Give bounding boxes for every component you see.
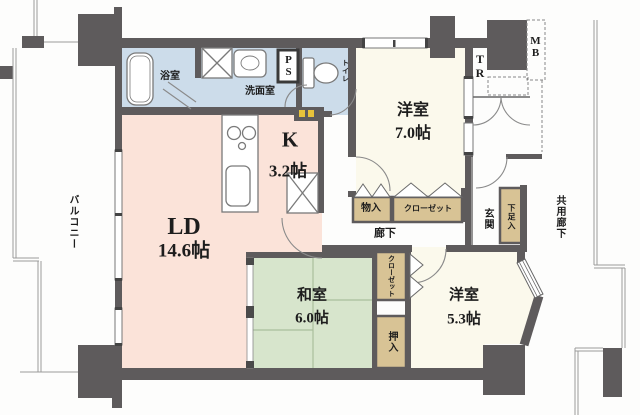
trunk-door-left — [473, 97, 501, 125]
japanese-room-size: 6.0帖 — [295, 312, 329, 327]
stove-burner-2 — [243, 127, 256, 140]
balcony-label: バルコニー — [67, 195, 77, 250]
kitchen-name: K — [282, 130, 298, 151]
heater-light-1 — [299, 110, 305, 117]
wall-hall-south-w — [322, 245, 412, 252]
kitchen-size: 3.2帖 — [269, 163, 307, 180]
floor-plan-drawing — [0, 0, 640, 415]
kitchen-sink — [226, 166, 250, 206]
pillar-top-mid — [430, 16, 455, 58]
wall-entry — [506, 154, 542, 159]
window-balcony-2 — [115, 308, 122, 345]
ld-room-size: 14.6帖 — [158, 242, 210, 261]
window-western7-e1 — [464, 77, 473, 118]
western5-size: 5.3帖 — [447, 313, 481, 328]
washroom-label: 洗面室 — [245, 87, 275, 97]
balcony-outline — [13, 0, 78, 372]
wall-getabako-east — [520, 185, 527, 245]
mb-label: MB — [530, 35, 541, 59]
stove-burner-1 — [228, 127, 241, 140]
common-corridor-label: 共用廊下 — [554, 195, 564, 239]
corridor-block — [603, 348, 622, 397]
getabako-label: 下足入 — [507, 204, 515, 231]
pillar-top-right — [487, 20, 527, 70]
toilet-bowl — [314, 63, 338, 83]
pillar-bottom-right — [483, 345, 525, 395]
trunk-door-right — [501, 97, 530, 125]
monoire-label: 物入 — [361, 204, 381, 214]
western7-size: 7.0帖 — [395, 126, 431, 142]
japanese-room-name: 和室 — [297, 289, 327, 304]
wall-kitchen-corridor — [318, 107, 324, 213]
western5-name: 洋室 — [449, 289, 479, 304]
toilet-label: トイレ — [342, 59, 349, 83]
entrance-label: 玄関 — [482, 208, 492, 230]
toilet-tank — [303, 58, 314, 88]
western7-name: 洋室 — [397, 103, 429, 119]
wall-bath-wash — [195, 48, 201, 78]
heater-light-2 — [308, 110, 314, 117]
western7-floor — [356, 48, 465, 195]
wall-washitsu-east — [372, 258, 377, 368]
hallway-label: 廊下 — [374, 229, 396, 240]
trunk-room-outline — [488, 77, 528, 95]
stove-burner-3 — [239, 143, 246, 150]
tr-label: TR — [474, 52, 486, 80]
window-western7-e2 — [464, 123, 473, 155]
pillar-bottom-left — [78, 345, 122, 398]
oshiire-label: 押入 — [386, 331, 396, 353]
sliding-door — [246, 258, 254, 368]
floor-plan: LD 14.6帖 K 3.2帖 洋室 7.0帖 和室 6.0帖 洋室 5.3帖 … — [0, 0, 640, 415]
wall-bottom — [115, 368, 488, 380]
wall-bath-south — [122, 107, 322, 115]
front-door — [476, 157, 507, 188]
wall-washitsu-north — [246, 252, 375, 258]
closet-north-label: クローゼット — [404, 205, 452, 213]
bath-label: 浴室 — [160, 72, 180, 82]
balcony-divider-bar — [22, 36, 44, 48]
ps-label: PS — [283, 54, 294, 78]
water-heater — [294, 107, 320, 121]
closet-side-label: クローゼット — [388, 255, 395, 297]
wall-hall-south-e — [446, 245, 527, 252]
ld-room-name: LD — [167, 215, 200, 239]
